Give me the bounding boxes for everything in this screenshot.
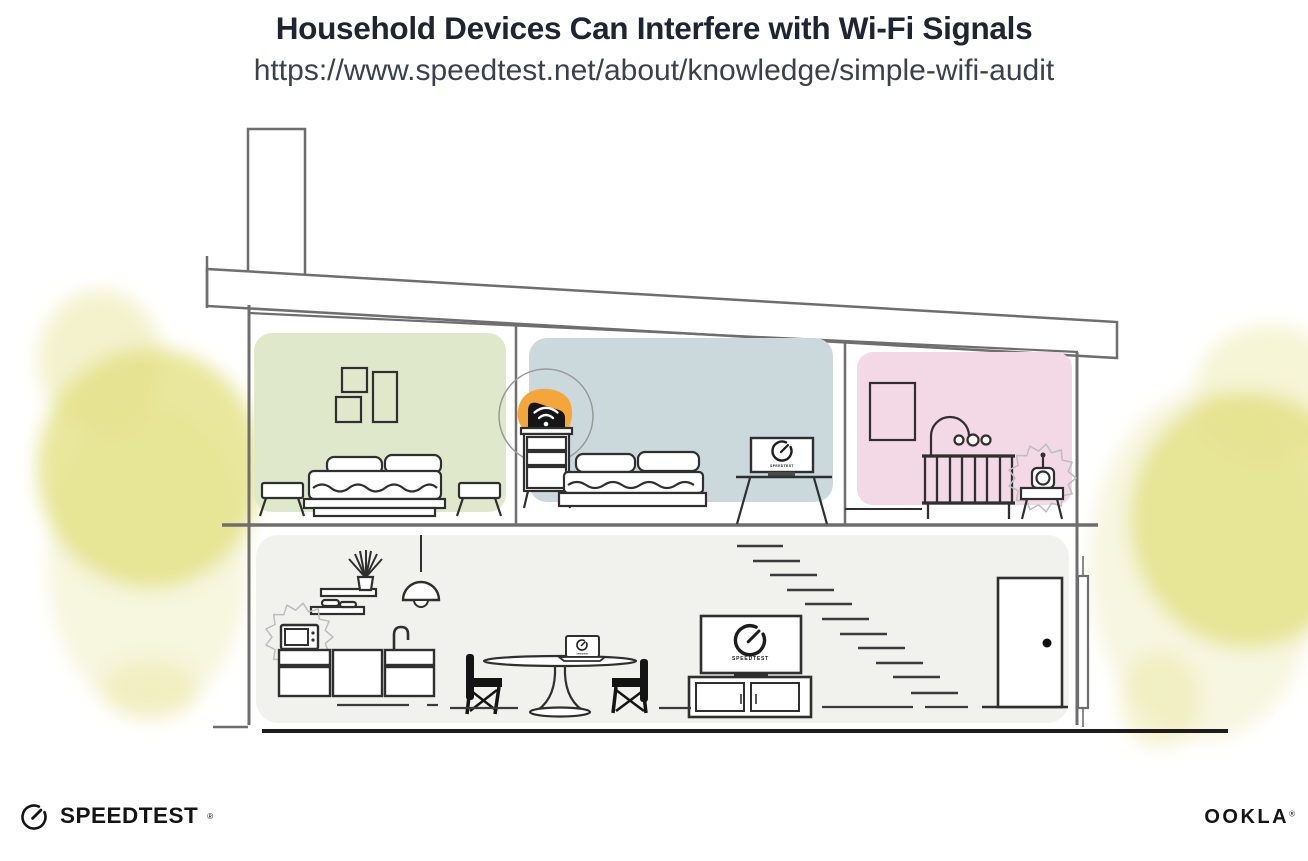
bed-base [304, 499, 445, 508]
ookla-logo: OOKLA® [1204, 806, 1295, 829]
house-illustration: SPEEDTEST [0, 0, 1308, 861]
bed-base [559, 493, 706, 506]
chimney [248, 129, 305, 279]
mattress [309, 471, 441, 499]
pillow [638, 452, 699, 471]
speedtest-logo: SPEEDTEST® [21, 801, 213, 831]
speedtest-reg-mark: ® [207, 812, 213, 821]
desk-monitor-label: SPEEDTEST [770, 464, 794, 468]
microwave [281, 625, 318, 649]
speedtest-gauge-icon [21, 801, 51, 831]
tv-console [689, 677, 811, 717]
ookla-wordmark: OOKLA [1204, 806, 1289, 828]
bowl [340, 602, 356, 607]
foliage-left [37, 290, 263, 720]
plant-pot [358, 577, 373, 590]
television: SPEEDTEST [701, 616, 801, 675]
downspout [1078, 556, 1088, 727]
door-knob [1043, 639, 1052, 648]
speedtest-wordmark: SPEEDTEST [60, 803, 198, 829]
pillow [576, 454, 635, 472]
kitchen-cabinets [279, 650, 434, 696]
tv-label: SPEEDTEST [732, 656, 769, 662]
bowl [322, 600, 339, 606]
dining-laptop-label: SPEEDTEST [577, 654, 590, 656]
foliage-right [1090, 325, 1308, 748]
dining-laptop: SPEEDTEST [559, 636, 605, 661]
bed-base [314, 508, 435, 516]
bed-middle [559, 452, 706, 506]
ookla-reg-mark: ® [1289, 810, 1295, 819]
monitor-stand [768, 472, 795, 476]
infographic-page: Household Devices Can Interfere with Wi-… [0, 0, 1308, 861]
